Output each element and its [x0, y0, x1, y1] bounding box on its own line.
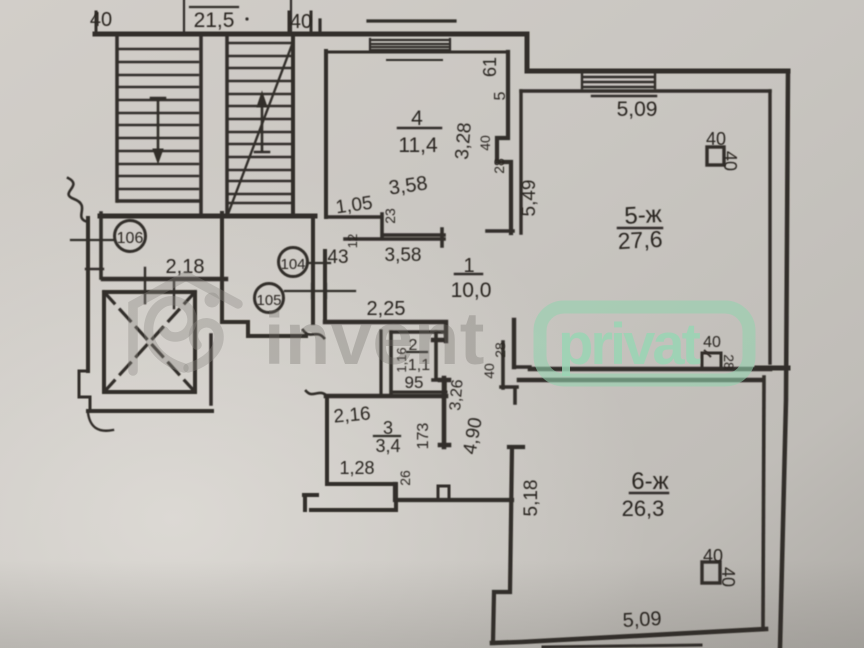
svg-text:5,18: 5,18 — [521, 480, 542, 517]
svg-text:43: 43 — [327, 247, 348, 268]
svg-text:1,28: 1,28 — [339, 458, 374, 478]
svg-text:40: 40 — [706, 129, 726, 149]
svg-text:5,09: 5,09 — [617, 98, 658, 121]
svg-text:5,09: 5,09 — [622, 608, 662, 632]
svg-text:1: 1 — [463, 255, 474, 277]
svg-text:26,3: 26,3 — [622, 496, 665, 521]
svg-text:11,4: 11,4 — [398, 134, 438, 157]
svg-text:privat: privat — [558, 312, 701, 377]
svg-text:173: 173 — [415, 423, 432, 450]
svg-text:40: 40 — [290, 11, 312, 33]
svg-text:3,58: 3,58 — [385, 245, 422, 266]
svg-text:40: 40 — [720, 151, 740, 171]
svg-text:104: 104 — [280, 256, 305, 273]
svg-text:40: 40 — [718, 567, 738, 587]
svg-text:12: 12 — [345, 234, 360, 248]
svg-text:61: 61 — [480, 57, 500, 77]
svg-text:3,28: 3,28 — [452, 122, 476, 161]
svg-text:3,4: 3,4 — [375, 436, 400, 456]
svg-text:40: 40 — [90, 9, 112, 31]
svg-text:40: 40 — [477, 135, 493, 151]
svg-text:invent: invent — [264, 297, 485, 380]
svg-text:2,16: 2,16 — [333, 403, 372, 427]
svg-text:26: 26 — [397, 470, 413, 486]
svg-text:28: 28 — [492, 342, 508, 358]
svg-text:23: 23 — [382, 208, 398, 224]
svg-text:5,49: 5,49 — [519, 180, 540, 217]
svg-text:40: 40 — [703, 546, 723, 566]
svg-text:28: 28 — [491, 158, 507, 174]
svg-text:40: 40 — [703, 334, 721, 351]
svg-text:28: 28 — [721, 354, 737, 370]
svg-text:27,6: 27,6 — [617, 226, 663, 254]
svg-text:4: 4 — [411, 107, 423, 130]
svg-text:6-ж: 6-ж — [631, 468, 668, 495]
svg-text:21,5: 21,5 — [194, 9, 235, 32]
svg-text:3: 3 — [383, 418, 393, 438]
svg-text:106: 106 — [117, 230, 144, 247]
svg-text:3,26: 3,26 — [447, 379, 467, 412]
svg-text:5: 5 — [492, 91, 509, 100]
